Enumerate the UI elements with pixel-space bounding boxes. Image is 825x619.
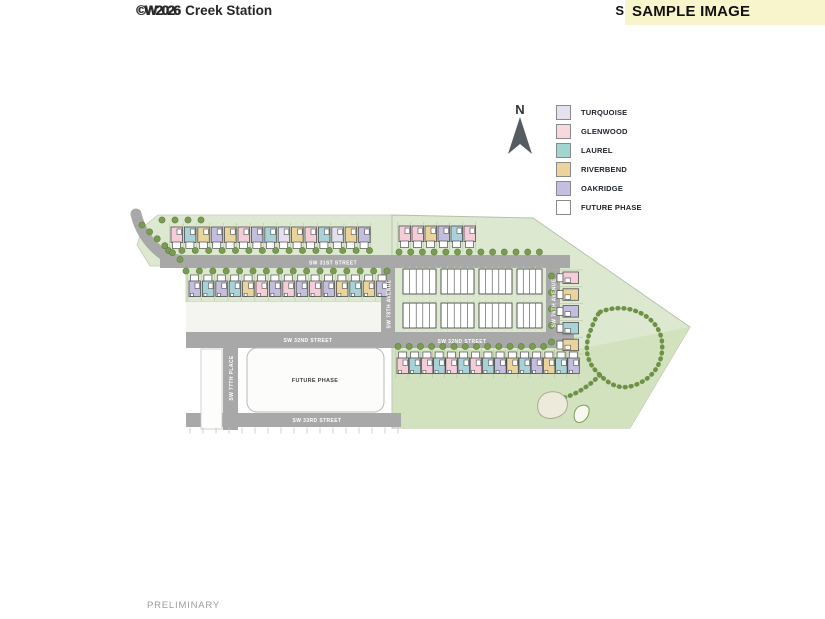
house [310,275,322,297]
house [296,275,308,297]
house [464,226,476,248]
house-row-second-row [189,275,388,297]
house-row-north-row [171,227,370,249]
house [305,227,317,249]
house [557,289,579,301]
house-row-south-row [397,352,579,374]
house [556,352,568,374]
house [568,352,580,374]
street-label-sw77pl: SW 77TH PLACE [229,355,235,400]
house [543,352,555,374]
house [189,275,201,297]
house [198,227,210,249]
street-label-sw32-left: SW 32ND STREET [284,338,333,344]
future-phase-label: FUTURE PHASE [292,378,338,384]
house [412,226,424,248]
house [292,227,304,249]
house [225,227,237,249]
house [557,272,579,284]
house [446,352,458,374]
house [458,352,470,374]
house [421,352,433,374]
site-plan-map: SW 31ST STREET SW 32ND STREET SW 32ND ST… [0,0,825,619]
house [557,306,579,318]
house [256,275,268,297]
house [482,352,494,374]
house [557,322,579,334]
play-area [538,392,568,419]
road-sw-31st [160,255,570,268]
house [438,226,450,248]
mid-open-area [186,302,392,332]
house [216,275,228,297]
house [531,352,543,374]
house [397,352,409,374]
house [202,275,214,297]
west-parcel-strip [201,349,222,429]
house [345,227,357,249]
house [519,352,531,374]
street-label-sw32-right: SW 32ND STREET [438,339,487,345]
house [399,226,411,248]
street-label-sw76av: SW 76TH AVENUE [552,278,558,327]
preliminary-watermark: PRELIMINARY [147,600,220,611]
house [409,352,421,374]
road-sw-32nd [186,332,574,348]
house [332,227,344,249]
house [265,227,277,249]
house [251,227,263,249]
house [283,275,295,297]
house [278,227,290,249]
house [425,226,437,248]
house [363,275,375,297]
street-label-sw33: SW 33RD STREET [293,418,342,424]
house [470,352,482,374]
house [171,227,183,249]
street-label-sw31: SW 31ST STREET [309,261,357,267]
street-label-sw78av: SW 78TH AVENUE [387,279,393,328]
house [434,352,446,374]
house [507,352,519,374]
house [269,275,281,297]
house [495,352,507,374]
house [184,227,196,249]
house [350,275,362,297]
house [318,227,330,249]
house [557,339,579,351]
house [229,275,241,297]
house [211,227,223,249]
house [243,275,255,297]
house [323,275,335,297]
house [238,227,250,249]
house [336,275,348,297]
house [359,227,371,249]
house [451,226,463,248]
